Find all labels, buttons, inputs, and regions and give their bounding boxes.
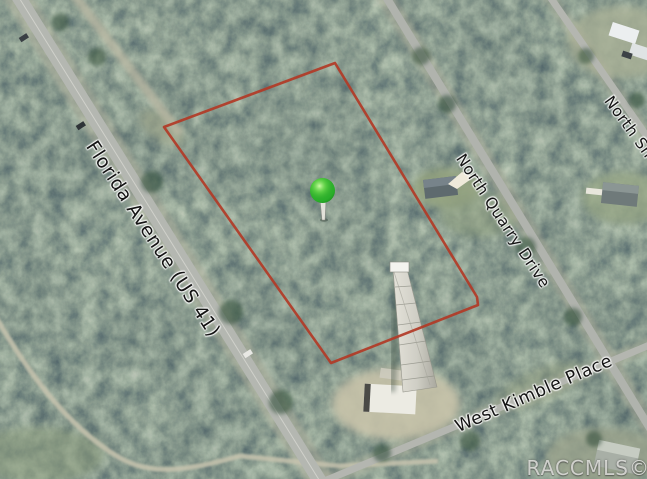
forest-texture [0,0,647,479]
aerial-photo [0,0,647,479]
mls-aerial-map: Florida Avenue (US 41) North Quarry Driv… [0,0,647,479]
